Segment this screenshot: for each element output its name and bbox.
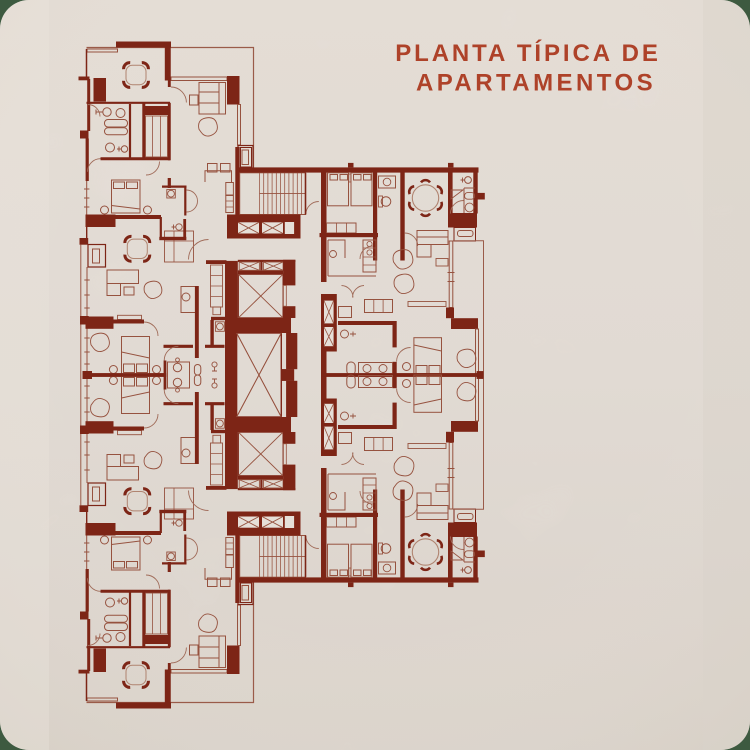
svg-text:APARTAMENTOS: APARTAMENTOS — [416, 70, 656, 97]
svg-text:PLANTA TÍPICA DE: PLANTA TÍPICA DE — [395, 39, 661, 67]
